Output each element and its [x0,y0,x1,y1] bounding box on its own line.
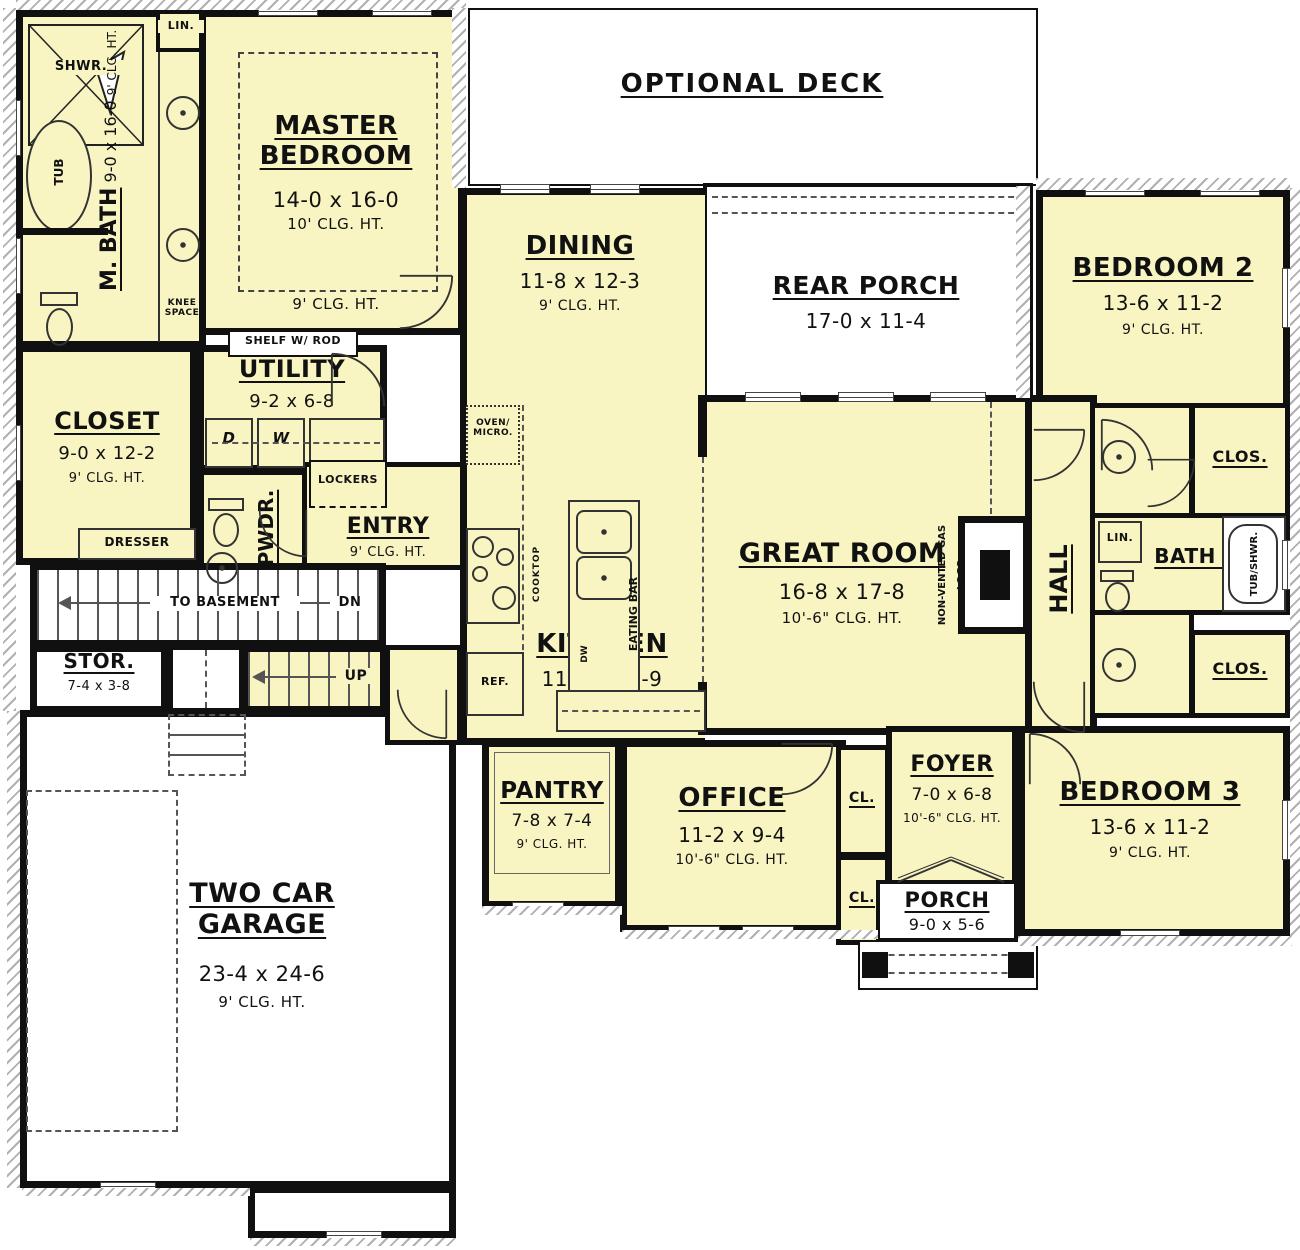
exterior-hatch-bedroom2-top [1036,178,1290,190]
window [590,184,640,194]
master-bath-name: M. BATH [97,188,122,291]
mbath-sink-2 [166,228,200,262]
tub-label: TUB [52,137,66,207]
closet-hall-1-label: CLOS. [1195,448,1285,466]
cooktop-label: COOKTOP [532,546,542,602]
mbath-sink-1 [166,96,200,130]
ceiling-break-line [702,457,704,682]
shelf-rod-label: SHELF W/ ROD [230,335,356,348]
bedroom2-dims: 13-6 x 11-2 [1048,292,1278,315]
master-bedroom-clg: 10' CLG. HT. [228,216,444,233]
down-label: DN [330,596,370,611]
wall-stub-top [698,395,707,457]
up-stair-arrow [262,676,336,678]
exterior-hatch-garage-bottom-left [22,1188,250,1196]
fireplace-firebox [980,550,1010,600]
dining-clg: 9' CLG. HT. [490,298,670,314]
bedroom3-dims: 13-6 x 11-2 [1030,816,1270,839]
rear-porch-dims: 17-0 x 11-4 [716,310,1016,333]
door-utility [330,352,386,408]
up-stair-arrowhead [252,670,265,684]
front-double-door [893,856,1009,884]
entry-clg: 9' CLG. HT. [318,546,458,561]
door-hall-top [1032,428,1086,482]
powder-toilet-bowl [213,513,239,547]
exterior-hatch-porch-wall [1016,186,1030,398]
rear-porch-name: REAR PORCH [716,272,1016,301]
burner-3 [472,566,488,582]
powder-toilet-tank [208,498,244,511]
tub-shower-label: TUB/SHWR. [1249,532,1260,597]
fireplace-flue-dash [990,402,992,514]
door-powder [258,508,308,558]
window [930,392,986,402]
garage-dashed-area [26,790,178,1132]
bath2-toilet-bowl [1105,582,1130,612]
closet-dims: 9-0 x 12-2 [27,444,187,465]
master-bedroom-name: MASTER BEDROOM [228,112,444,172]
closet-name: CLOSET [27,408,187,436]
door-bedroom3 [1028,732,1082,786]
lockers-label: LOCKERS [311,474,385,487]
gas-logs-label-wrap: NON-VENTED GAS LOGS [930,515,960,635]
porch-post-left [862,952,888,978]
foyer-dims: 7-0 x 6-8 [892,786,1012,806]
stoop-dash-1 [868,954,1028,956]
deck-edge-dash-1 [712,196,1024,198]
kitchen-bottom-counter-dash [562,710,700,712]
hall-name: HALL [1045,544,1073,613]
floor-plan: SHWR. TUB KNEE SPACE LIN. MASTER BEDROOM… [0,0,1300,1250]
eating-bar-label: EATING BAR [627,577,640,651]
closet-foyer-1-label: CL. [837,790,887,806]
utility-counter-dash [212,442,380,444]
door-office [780,742,834,796]
window [500,184,550,194]
pantry-clg: 9' CLG. HT. [482,838,622,852]
entry-name: ENTRY [318,514,458,539]
door-bath2 [1146,458,1196,508]
exterior-hatch-office-bottom [622,930,878,939]
optional-deck-name: OPTIONAL DECK [602,70,902,100]
exterior-hatch-garage-bottom-right [250,1238,456,1246]
eating-bar-label-wrap: EATING BAR [622,554,638,674]
pantry-name: PANTRY [482,778,622,804]
window [745,392,801,402]
closet-hall-2-label: CLOS. [1195,660,1285,678]
dresser-label: DRESSER [82,536,192,550]
burner-2 [496,548,514,566]
master-bath-dims: 9-0 x 16-0 [101,100,120,182]
bedroom3-clg: 9' CLG. HT. [1030,845,1270,861]
window [838,392,894,402]
island-sink-bowl-1 [576,510,632,554]
stoop-dash-2 [868,972,1028,974]
burner-1 [472,536,494,558]
tray-ceiling-outline [238,52,438,292]
door-garage-entry [396,688,448,740]
porch-dims: 9-0 x 5-6 [887,916,1007,934]
burner-4 [492,586,516,610]
dryer-label: D [205,430,253,447]
exterior-hatch-left-garage [7,711,20,1188]
knee-space-label: KNEE SPACE [158,298,206,319]
master-bath-label: M. BATH 9-0 x 16-0 9' CLG. HT. [97,65,149,291]
garage-clg: 9' CLG. HT. [142,994,382,1011]
exterior-hatch-top [16,0,466,10]
garage-dims: 23-4 x 24-6 [142,962,382,986]
oven-micro-label: OVEN/ MICRO. [468,418,518,439]
linen-hall-label: LIN. [1098,532,1142,545]
door-master-bedroom [398,274,454,330]
office-clg: 10'-6" CLG. HT. [642,852,822,868]
to-basement-label: TO BASEMENT [150,596,300,611]
exterior-hatch-left-upper [3,8,16,711]
vanity-bottom-sink [1102,648,1136,682]
fridge-label: REF. [470,676,520,689]
office-dims: 11-2 x 9-4 [642,824,822,847]
mbath-toilet-tank [40,292,78,306]
dining-dims: 11-8 x 12-3 [490,270,670,293]
foyer-name: FOYER [892,752,1012,777]
storage-dims: 7-4 x 3-8 [44,680,154,695]
dishwasher-label-wrap: DW [572,628,584,680]
pantry-dims: 7-8 x 7-4 [482,812,622,832]
deck-edge-dash-2 [712,212,1024,214]
mbath-toilet-bowl [46,308,73,346]
linen-top-label: LIN. [158,20,204,33]
closet-clg: 9' CLG. HT. [27,472,187,487]
porch-name: PORCH [887,888,1007,912]
tub-shower-label-wrap: TUB/SHWR. [1242,512,1266,616]
bath2-toilet-tank [1100,570,1134,582]
up-label: UP [336,668,376,684]
hall-label-wrap: HALL [1045,504,1075,654]
mbath-toilet-wall [16,228,108,235]
master-bath-clg: 9' CLG. HT. [105,30,119,95]
basement-stair-arrowhead [58,596,71,610]
exterior-hatch-pantry-bottom [482,906,622,915]
foyer-clg: 10'-6" CLG. HT. [882,812,1022,826]
cooktop-label-wrap: COOKTOP [524,529,540,619]
door-hall-bottom [1032,680,1086,734]
landing-dash [205,650,207,708]
dishwasher-label: DW [580,645,590,662]
storage-name: STOR. [44,650,154,673]
closet-foyer-2-label: CL. [837,890,887,906]
washer-label: W [257,430,305,447]
garage-name: TWO CAR GARAGE [142,878,382,940]
bedroom2-clg: 9' CLG. HT. [1048,322,1278,338]
porch-post-right [1008,952,1034,978]
exterior-hatch-bedroom3-bottom [1018,936,1292,946]
exterior-hatch-right [1290,188,1300,936]
dining-name: DINING [490,232,670,262]
bedroom2-name: BEDROOM 2 [1048,254,1278,284]
garage-dashed-steps [168,714,246,776]
master-bedroom-dims: 14-0 x 16-0 [228,188,444,212]
exterior-hatch-deck-wall [452,8,466,188]
